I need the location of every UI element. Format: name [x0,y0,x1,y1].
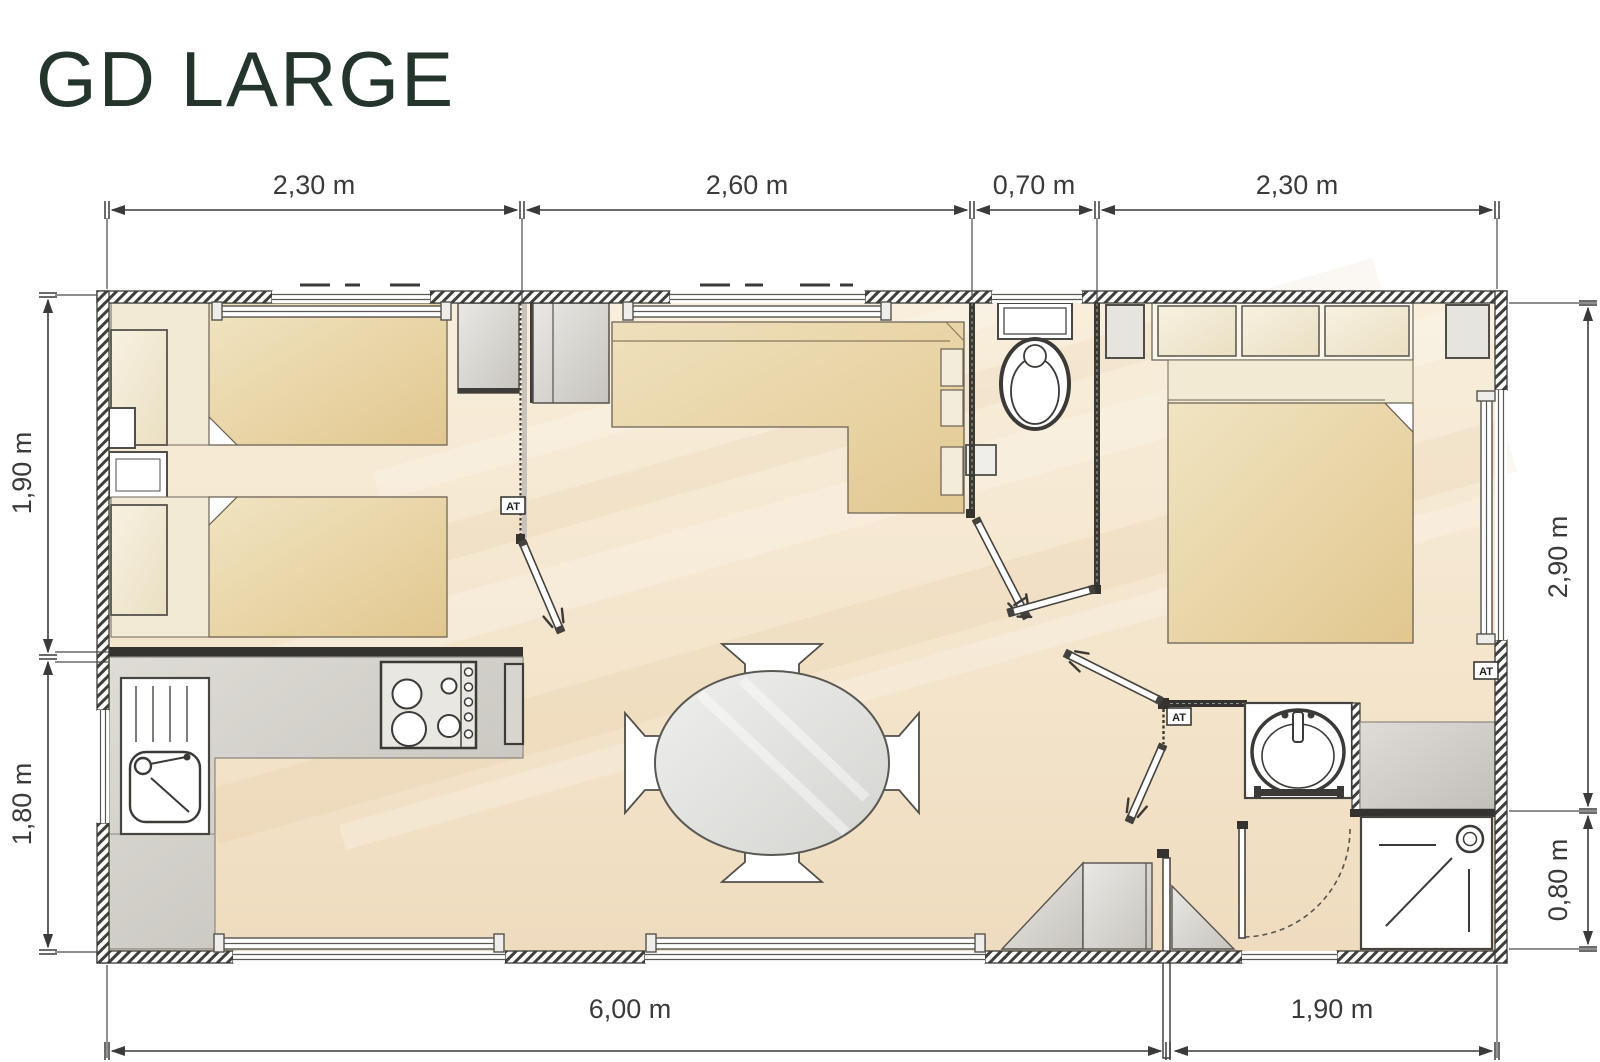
window-kitchen-left [97,710,109,823]
dim-top-2: 2,60 m [706,170,789,200]
vent-label: AT [506,501,520,513]
wall-left [97,823,109,963]
basin-faucet [1293,712,1303,742]
wall-bottom [97,951,233,963]
twin-bed-2-duvet [209,497,447,637]
floor-plan-page: GD LARGE [0,0,1600,1062]
door-hinge [966,509,975,518]
sofa-cushion [941,390,963,426]
shower-room-wall [1350,809,1507,817]
oven-side-panel [505,664,523,744]
vent-label: AT [1172,712,1186,724]
stove [381,662,476,748]
window-bedroom-right-side [1477,390,1507,644]
wall-bottom [1337,951,1507,963]
kitchen-partition-wall [109,647,523,657]
kitchen-sink-unit [121,678,209,834]
dim-right-1: 2,90 m [1543,516,1573,599]
window-living-bottom-left [214,934,505,963]
headboard-cushion [1242,306,1319,356]
headboard-cushion [1325,306,1409,356]
window-bathroom-bottom [1242,951,1337,963]
window-living-bottom-right [645,934,985,963]
faucet-base [135,758,151,774]
towel-rail [1259,789,1339,796]
wall-heater [109,408,135,448]
double-bed-duvet [1168,403,1413,643]
wall-top [430,291,670,303]
vent-label: AT [1479,666,1493,678]
sofa-cushion [941,349,963,386]
burner-large [392,712,426,746]
dimension-bottom: 6,00 m 1,90 m [105,965,1499,1060]
burner-small [442,679,457,694]
shower [1361,817,1492,949]
door-hinge [1237,821,1248,829]
washbasin-unit [1245,703,1352,798]
entry-door-handle [1157,849,1169,858]
headboard-cushion [1158,306,1236,356]
wardrobe-right-bedroom-left [1106,305,1144,358]
shower-drain [1457,826,1483,852]
wall-bottom [505,951,645,963]
wall-top [97,291,272,303]
floor-plan-drawing: GD LARGE [0,0,1600,1062]
bathroom-counter [1360,722,1495,809]
burner-small [438,715,460,737]
wall-top [1082,291,1507,303]
page-title: GD LARGE [36,35,455,123]
dim-top-4: 2,30 m [1256,170,1339,200]
dim-top-3: 0,70 m [993,170,1076,200]
wall-left [97,291,109,710]
wardrobe-right-bedroom-right [1446,305,1489,358]
burner-large [393,680,422,709]
dim-top-1: 2,30 m [273,170,356,200]
dimension-left: 1,90 m 1,80 m [7,293,109,954]
wall-right [1495,291,1507,390]
window-wc-top [992,291,1082,303]
dim-left-2: 1,80 m [7,763,37,846]
twin-bed-2-pillow [111,505,167,615]
dimension-right: 2,90 m 0,80 m [1509,301,1597,951]
wardrobe-bedroom-left [458,303,519,393]
twin-bed-1-duvet [209,303,447,445]
toilet [998,303,1072,429]
entry-door-panel [1083,863,1152,949]
dim-bottom-1: 6,00 m [589,994,672,1024]
bathroom-wall-stub [1352,703,1360,810]
wall-bottom [985,951,1242,963]
wall-top [865,291,992,303]
wall-right [1495,640,1507,963]
sofa-cushion [941,447,963,495]
door-leaf [1239,828,1245,938]
dim-left-1: 1,90 m [7,432,37,515]
wardrobe-living [533,303,609,403]
dim-bottom-2: 1,90 m [1291,994,1374,1024]
dim-right-2: 0,80 m [1543,839,1573,922]
